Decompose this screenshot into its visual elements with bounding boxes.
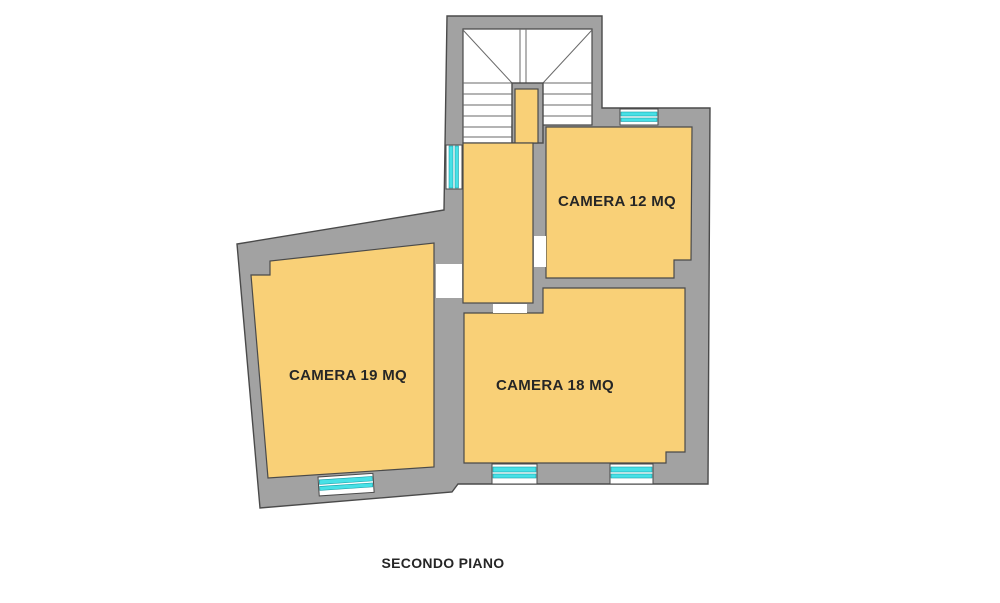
floor-plan-drawing: CAMERA 12 MQ CAMERA 19 MQ CAMERA 18 MQ S… — [0, 0, 1000, 603]
window-camera12-top — [620, 109, 658, 125]
window-camera19-bottom — [318, 473, 374, 496]
window-left-wall — [446, 145, 462, 189]
stair-landing-strip — [515, 89, 538, 143]
floor-plan-page: CAMERA 12 MQ CAMERA 19 MQ CAMERA 18 MQ S… — [0, 0, 1000, 603]
room-label-camera-12: CAMERA 12 MQ — [558, 193, 676, 210]
floor-title: SECONDO PIANO — [382, 555, 505, 571]
room-camera-19 — [251, 243, 434, 478]
room-label-camera-18: CAMERA 18 MQ — [496, 377, 614, 394]
room-camera-18 — [464, 288, 685, 463]
hallway — [463, 143, 533, 303]
door-hallway-camera18 — [493, 304, 527, 313]
window-camera18-bottom-left — [492, 464, 537, 484]
room-label-camera-19: CAMERA 19 MQ — [289, 367, 407, 384]
window-camera18-bottom-right — [610, 464, 653, 484]
door-camera19-hallway — [436, 264, 462, 298]
door-hallway-camera12 — [534, 236, 546, 267]
